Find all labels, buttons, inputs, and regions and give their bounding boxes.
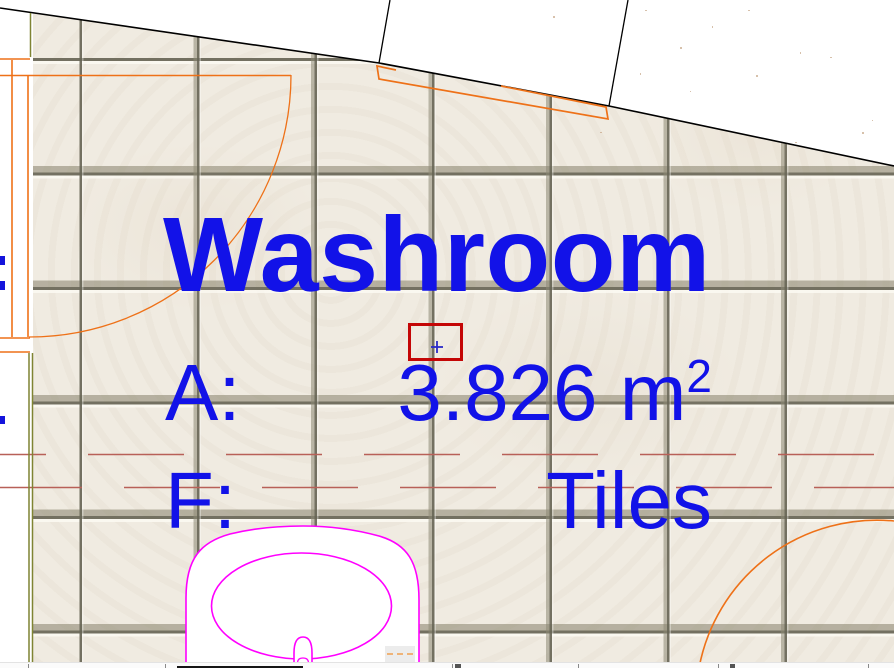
wall-lines[interactable] (0, 0, 894, 166)
tick-mark (868, 664, 869, 668)
top-wall-window[interactable] (377, 66, 608, 119)
bottom-clipped-row (0, 662, 894, 668)
tick-mark (28, 664, 29, 668)
clipped-text-fragment (0, 256, 5, 265)
area-line[interactable]: A: 3.826 m2 (165, 353, 712, 433)
clipped-dashed-line (385, 646, 415, 662)
clipped-glyph (455, 664, 461, 668)
finish-value[interactable]: Tiles (546, 461, 712, 541)
tick-mark (452, 664, 453, 668)
clipped-glyph (730, 664, 735, 668)
bottom-right-door-swing-arc[interactable] (699, 520, 894, 668)
clipped-element-patch (385, 646, 415, 662)
room-name-label[interactable]: Washroom (163, 202, 711, 308)
finish-label[interactable]: F: (165, 461, 236, 541)
tick-mark (578, 664, 579, 668)
drawing-canvas[interactable]: Washroom A: 3.826 m2 F: Tiles (0, 0, 894, 668)
area-label[interactable]: A: (165, 353, 241, 433)
tick-mark (718, 664, 719, 668)
area-exponent: 2 (686, 350, 712, 402)
texture-speckles (553, 10, 873, 143)
area-value[interactable]: 3.826 m2 (397, 353, 712, 433)
clipped-text-fragment (0, 281, 5, 290)
tick-mark (165, 664, 166, 668)
finish-line[interactable]: F: Tiles (165, 461, 712, 541)
clipped-text-fragment (0, 416, 5, 424)
